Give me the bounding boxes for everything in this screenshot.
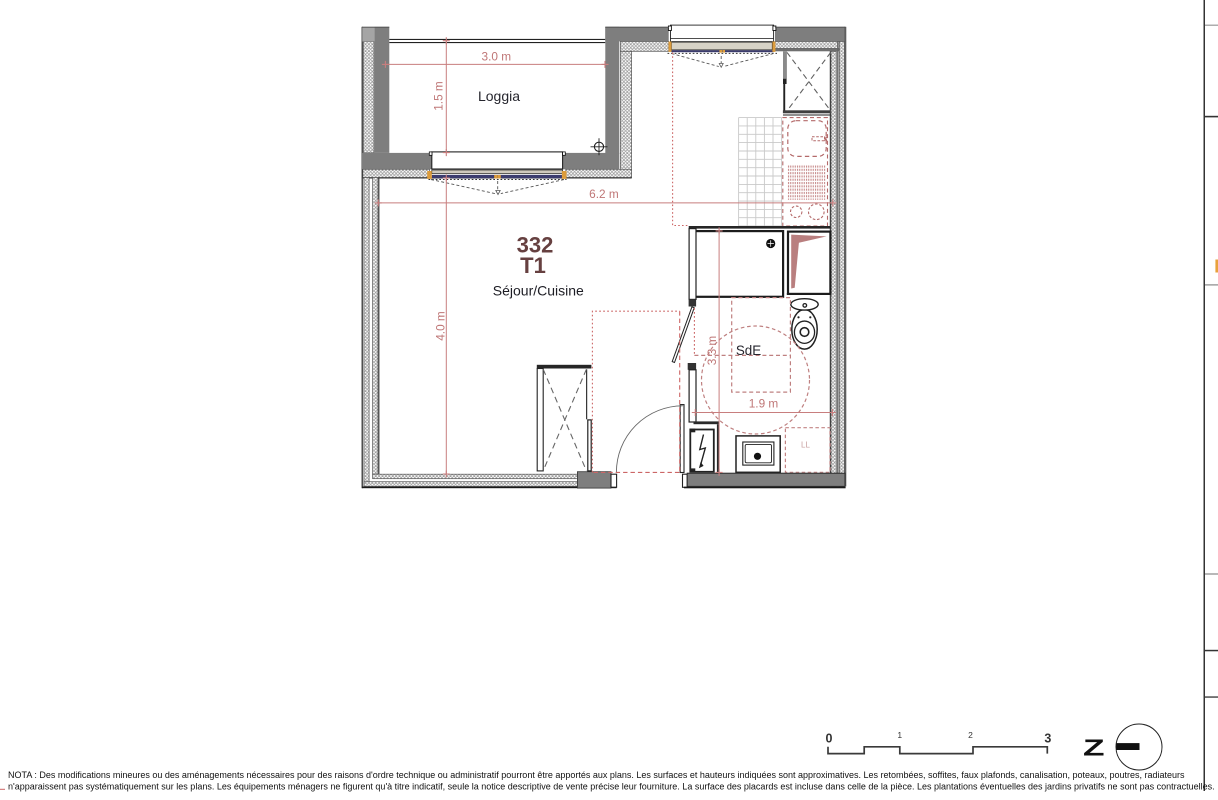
svg-text:0: 0: [826, 732, 833, 746]
svg-text:LL: LL: [801, 441, 810, 450]
svg-text:n'apparaissent pas systématiqu: n'apparaissent pas systématiquement sur …: [8, 782, 1215, 792]
svg-text:6.2 m: 6.2 m: [589, 187, 619, 201]
svg-text:3: 3: [1044, 732, 1051, 746]
svg-text:Séjour/Cuisine: Séjour/Cuisine: [493, 283, 584, 299]
svg-text:T1: T1: [520, 253, 546, 278]
svg-text:Z: Z: [1083, 735, 1105, 761]
svg-text:3.0 m: 3.0 m: [482, 49, 512, 63]
svg-text:Loggia: Loggia: [478, 88, 520, 104]
svg-text:NOTA : Des modifications mineu: NOTA : Des modifications mineures ou des…: [8, 770, 1185, 780]
svg-text:1: 1: [897, 730, 902, 740]
svg-text:4.0 m: 4.0 m: [433, 311, 447, 341]
svg-text:SdE: SdE: [736, 343, 761, 358]
svg-text:3.3 m: 3.3 m: [705, 336, 719, 366]
svg-text:1.9 m: 1.9 m: [749, 397, 779, 411]
svg-text:1.5 m: 1.5 m: [432, 81, 446, 111]
svg-text:2: 2: [968, 730, 973, 740]
